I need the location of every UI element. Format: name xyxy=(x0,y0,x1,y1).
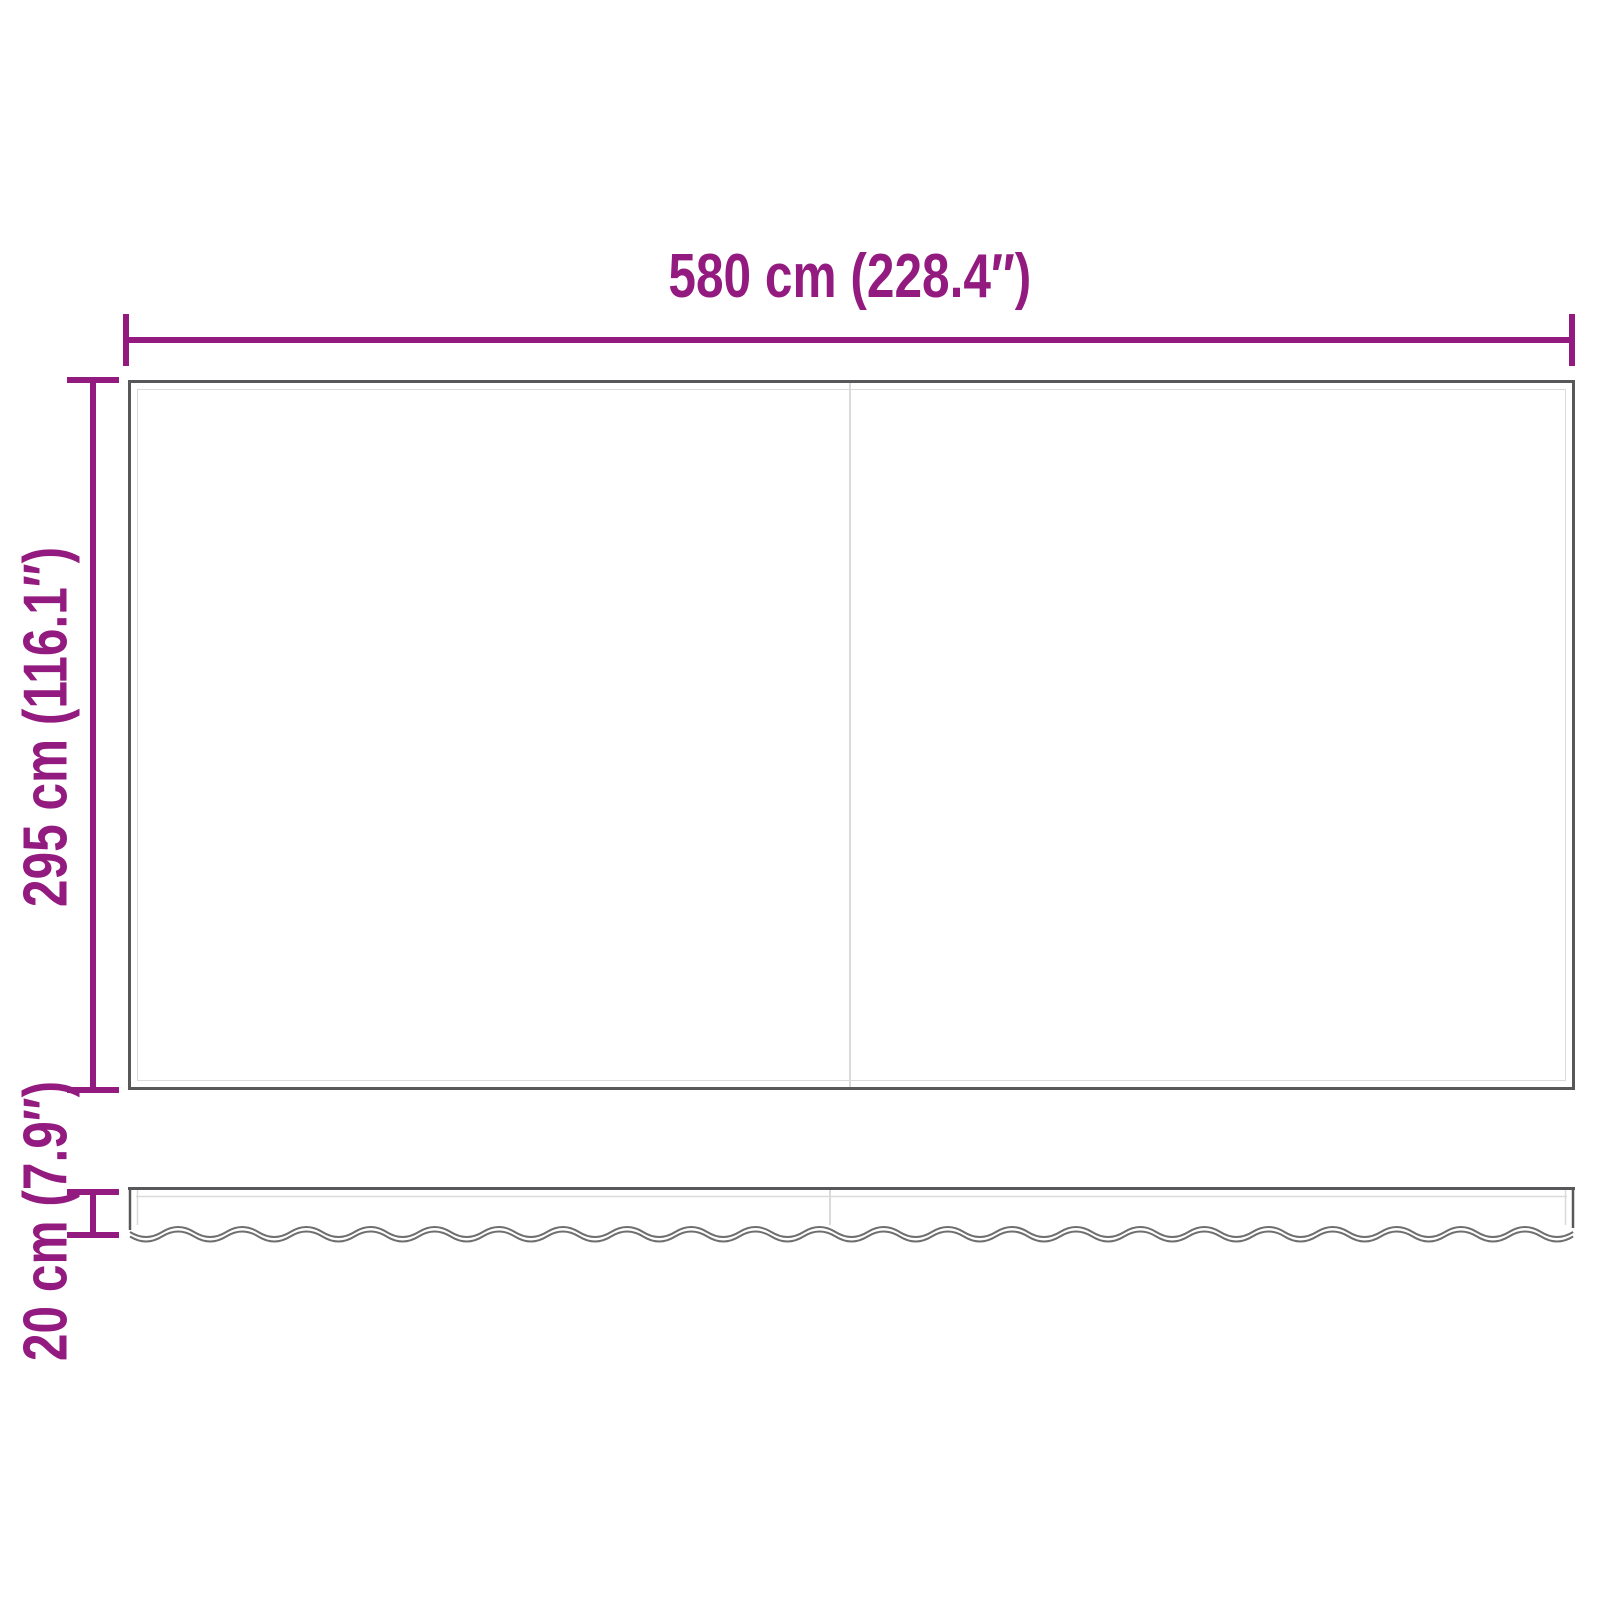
dimension-diagram: 580 cm (228.4″) 295 cm (116.1″) 20 cm (7… xyxy=(0,0,1600,1600)
width-dimension-label: 580 cm (228.4″) xyxy=(450,238,1250,314)
width-dimension-bar xyxy=(123,337,1575,343)
fabric-panel-inner-hem xyxy=(137,389,1566,1081)
height-dimension-bar xyxy=(90,377,96,1093)
width-dimension-tick-right xyxy=(1569,314,1575,366)
valance-height-dimension-label: 20 cm (7.9″) xyxy=(11,1081,82,1361)
width-dimension-label-text: 580 cm (228.4″) xyxy=(669,241,1032,312)
width-dimension-line xyxy=(123,314,1575,366)
fabric-panel-center-seam xyxy=(849,383,851,1087)
height-dimension-label: 295 cm (116.1″) xyxy=(11,547,82,907)
valance-strip xyxy=(128,1187,1575,1249)
fabric-panel xyxy=(128,380,1575,1090)
valance-dimension-bar xyxy=(90,1189,96,1238)
